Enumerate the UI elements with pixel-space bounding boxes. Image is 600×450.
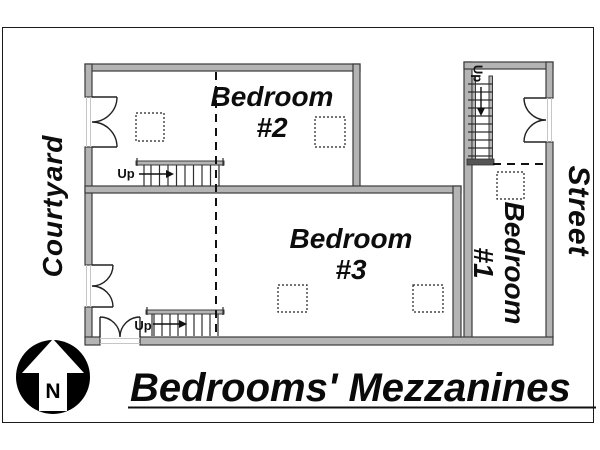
plan-title: Bedrooms' Mezzanines bbox=[130, 366, 598, 411]
up-label-bedroom2: Up bbox=[111, 166, 141, 181]
bedroom1-number: #1 bbox=[468, 178, 499, 348]
up-label-bedroom1: Up bbox=[471, 59, 486, 89]
bedroom1-name: Bedroom bbox=[499, 178, 530, 348]
bedroom3-number: #3 bbox=[266, 254, 436, 285]
bedroom2-label: Bedroom #2 bbox=[187, 81, 357, 143]
staircase-bedroom2-icon bbox=[136, 158, 224, 186]
bedroom3-label: Bedroom #3 bbox=[266, 223, 436, 285]
door-courtyard-upper-icon bbox=[92, 97, 117, 147]
bedroom1-label: Bedroom #1 bbox=[468, 178, 530, 348]
bedroom2-number: #2 bbox=[187, 112, 357, 143]
street-label: Street bbox=[561, 131, 595, 291]
bedroom2-name: Bedroom bbox=[187, 81, 357, 112]
door-street-icon bbox=[524, 98, 546, 142]
floor-plan-page: Courtyard Street Bedroom #2 Bedroom #3 B… bbox=[0, 0, 600, 450]
up-label-bedroom3: Up bbox=[128, 318, 158, 333]
compass-north-letter: N bbox=[39, 380, 67, 404]
door-courtyard-lower-icon bbox=[92, 265, 113, 307]
courtyard-label: Courtyard bbox=[37, 121, 67, 291]
bedroom3-name: Bedroom bbox=[266, 223, 436, 254]
